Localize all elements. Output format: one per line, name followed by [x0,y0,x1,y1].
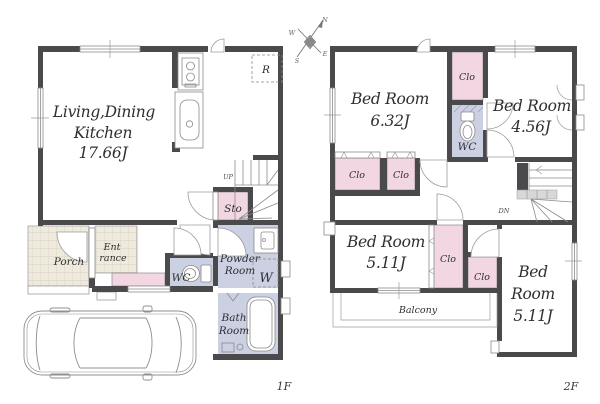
compass-east-label: E [322,50,328,58]
floor-plan-canvas: Living,Dining Kitchen 17.66J R UP Sto Po… [0,0,600,404]
bedroom1-door-swing [420,160,447,187]
bath-label-line2: Room [218,325,250,337]
closet-small-label: Clo [474,272,490,283]
porch-label: Porch [53,256,85,268]
bedroom3-label: Bed Room [346,233,425,251]
closet-top-label: Clo [459,72,475,83]
compass-south-label: S [295,57,300,65]
wc-label-1f: WC [172,272,191,284]
bedroom1-area: 6.32J [370,112,410,130]
bedroom2-casement-a [576,85,584,100]
ldk-label-line2: Kitchen [73,124,133,142]
storage-label: Sto [224,203,242,215]
bedroom4-area: 5.11J [513,307,553,325]
porch-step [28,286,89,294]
vanity-icon [254,228,278,253]
bedroom4-side-window [491,341,499,353]
kitchen-counter [175,53,203,148]
bedroom4-label-line1: Bed [517,263,548,281]
powder-label-line1: Powder [219,253,261,265]
entrance-outside-step [97,292,116,300]
closet-left-a-label: Clo [349,170,365,181]
entrance-label-line2: rance [99,253,127,264]
stairs-down-label: DN [498,207,510,215]
compass-star-icon [297,20,323,57]
entrance-label-line1: Ent [103,242,121,253]
bedroom3-vent-window [324,222,335,235]
compass-west-label: W [289,29,297,37]
ldk-label-line1: Living,Dining [52,103,156,121]
compass-rose: N W E S [289,16,329,65]
bedroom3-door-swing [437,194,463,220]
kitchen-back-door-swing [211,39,224,52]
closet-mid-label: Clo [440,254,456,265]
washer-label: W [259,271,274,286]
bedroom2-area: 4.56J [510,118,551,136]
floor-plan-drawing: Living,Dining Kitchen 17.66J R UP Sto Po… [0,0,600,404]
front-door-leaf [89,228,95,278]
ldk-area-label: 17.66J [79,144,129,162]
bedroom2-casement-b [576,115,584,130]
bedroom2-door-swing [487,130,514,157]
bedroom1-window-swing [417,39,430,52]
bedroom4-label-line2: Room [510,285,555,303]
entrance-step [112,273,165,286]
car-icon [24,306,196,380]
floor2-plan: Bed Room 6.32J Bed Room 4.56J Clo WC Clo… [324,39,584,393]
compass-north-label: N [321,16,328,24]
powder-vent-window [281,261,290,277]
balcony-label: Balcony [398,305,438,316]
stairs-door-swing [188,192,216,220]
bath-vent-window [281,298,290,314]
closet-left-b-label: Clo [393,170,409,181]
bedroom1-label: Bed Room [350,90,429,108]
bedroom2-label: Bed Room [492,97,571,115]
stairs-up-label: UP [223,173,233,181]
bedroom3-area: 5.11J [366,254,406,272]
refrigerator-label: R [261,64,270,76]
floor1-label: 1F [277,380,292,393]
bath-label-line1: Bath [221,312,247,324]
bathtub-icon [247,297,275,351]
wc-label-2f: WC [458,141,477,153]
bedroom4-door-swing [471,229,499,257]
powder-label-line2: Room [224,265,256,277]
stairs-door-leaf [213,192,218,220]
floor2-label: 2F [563,380,579,393]
